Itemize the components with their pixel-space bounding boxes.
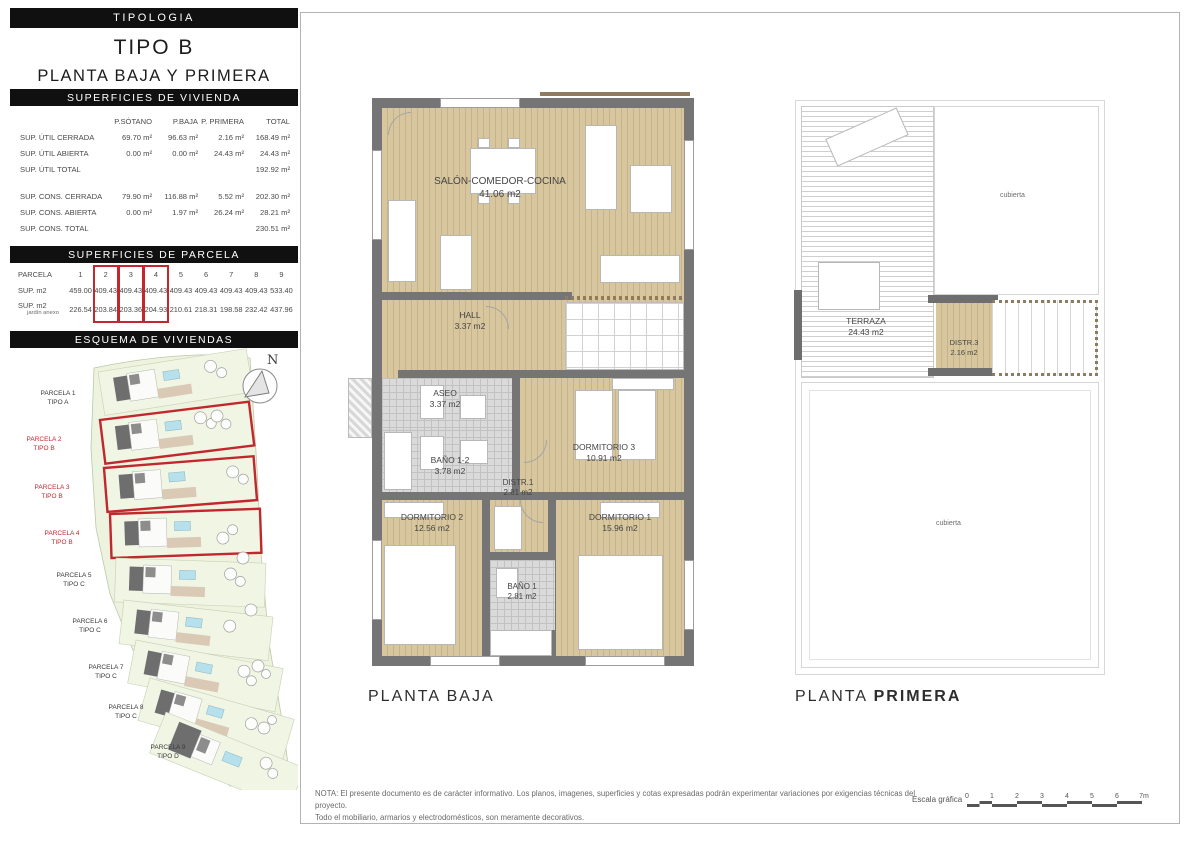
parcel-label-5: PARCELA 5 (57, 572, 92, 579)
planta-primera-caption: PLANTA PRIMERA (795, 688, 961, 706)
porch-dotted-edge (565, 296, 684, 300)
wall (928, 368, 998, 376)
cubierta-bottom-label: cubierta (936, 520, 961, 527)
parcela-table: PARCELA 123456789 SUP. m2 459.00409.4340… (10, 263, 298, 320)
esquema-header-bar: ESQUEMA DE VIVIENDAS (10, 331, 298, 348)
window (372, 150, 382, 240)
kitchen-island (630, 165, 672, 213)
room-label-bano1: BAÑO 12.81 m2 (490, 582, 554, 603)
sofa (388, 200, 416, 282)
window (684, 560, 694, 630)
svg-text:TIPO C: TIPO C (63, 581, 85, 588)
tree-icon (245, 604, 257, 616)
svg-text:TIPO B: TIPO B (33, 445, 54, 452)
window (585, 656, 665, 666)
svg-text:N: N (267, 353, 278, 368)
parcel-label-9: PARCELA 9 (151, 744, 186, 751)
tipo-title: TIPO B (10, 36, 298, 60)
vivienda-header-row: P.SÓTANO P.BAJA P. PRIMERA TOTAL (20, 113, 290, 129)
svg-text:TIPO D: TIPO D (157, 753, 179, 760)
room-label-salon: SALÓN-COMEDOR-COCINA41.06 m2 (420, 175, 580, 201)
room-label-dorm3: DORMITORIO 310.91 m2 (552, 442, 656, 464)
parcel-label-8: PARCELA 8 (109, 704, 144, 711)
svg-text:TIPO C: TIPO C (79, 627, 101, 634)
svg-text:3: 3 (1040, 793, 1044, 800)
room-label-terraza: TERRAZA24.43 m2 (828, 316, 904, 338)
svg-text:4: 4 (1065, 793, 1069, 800)
col-sotano: P.SÓTANO (106, 117, 152, 126)
stair-void (490, 630, 552, 656)
parcela-jardin-row: SUP. m2jardín anexo 226.54203.84203.3620… (14, 298, 294, 320)
tree-icon (262, 670, 271, 679)
staircase (565, 302, 684, 370)
planta-baja-caption: PLANTA BAJA (368, 688, 495, 706)
vivienda-table: P.SÓTANO P.BAJA P. PRIMERA TOTAL SUP. ÚT… (10, 106, 298, 236)
svg-text:0: 0 (965, 793, 969, 800)
nota-text: NOTA: El presente documento es de caráct… (315, 788, 927, 824)
col-total: TOTAL (244, 117, 290, 126)
tipologia-header-bar: TIPOLOGIA (10, 8, 298, 28)
room-label-bano12: BAÑO 1-23.78 m2 (408, 455, 492, 477)
table-row: SUP. ÚTIL ABIERTA 0.00 m² 0.00 m² 24.43 … (20, 145, 290, 161)
site-plan: N PARCELA 1 TIPO A PARCELA 2 TIPO B PARC… (10, 348, 298, 790)
wall (512, 378, 520, 492)
cubierta-top-label: cubierta (1000, 192, 1025, 199)
table-row: SUP. CONS. TOTAL 230.51 m² (20, 220, 290, 236)
vanity (494, 506, 522, 550)
svg-text:TIPO B: TIPO B (51, 539, 72, 546)
parcel-label-1: PARCELA 1 (41, 390, 76, 397)
wall (490, 552, 556, 560)
bed (578, 555, 663, 650)
window (684, 140, 694, 250)
parcel-strip-4 (110, 509, 261, 558)
tree-icon (237, 552, 249, 564)
room-label-hall: HALL3.37 m2 (440, 310, 500, 332)
svg-text:TIPO B: TIPO B (41, 493, 62, 500)
svg-text:TIPO C: TIPO C (95, 673, 117, 680)
parcel-label-3: PARCELA 3 (35, 484, 70, 491)
window (430, 656, 500, 666)
plan-sheet: { "header": { "tipologia": "TIPOLOGIA", … (0, 0, 1191, 842)
tree-icon (252, 660, 264, 672)
counter (600, 255, 680, 283)
scale-label: Escala gráfica (912, 795, 962, 804)
table-row: SUP. ÚTIL TOTAL 192.92 m² (20, 161, 290, 177)
tipologia-title: TIPOLOGIA (113, 12, 195, 24)
parcel-label-4: PARCELA 4 (45, 530, 80, 537)
parcel-strip-5 (114, 558, 265, 607)
chair (508, 138, 520, 148)
col-baja: P.BAJA (152, 117, 198, 126)
table-row: SUP. ÚTIL CERRADA 69.70 m² 96.63 m² 2.16… (20, 129, 290, 145)
roof-edge (540, 92, 690, 96)
terrace-table (818, 262, 880, 310)
room-label-aseo: ASEO3.37 m2 (410, 388, 480, 410)
room-label-distr1: DISTR.12.81 m2 (488, 478, 548, 499)
svg-text:1: 1 (990, 793, 994, 800)
tree-icon (221, 419, 231, 429)
parcela-sup-row: SUP. m2 459.00409.43409.43409.43409.4340… (14, 283, 294, 298)
staircase-upper (992, 300, 1098, 376)
svg-text:6: 6 (1115, 793, 1119, 800)
sideboard (440, 235, 472, 290)
graphic-scale: 0 1 2 3 4 5 6 7m (965, 790, 1155, 812)
scale-bar-segments (967, 801, 1142, 807)
wardrobe (612, 378, 674, 390)
cubierta-top-area (934, 106, 1099, 295)
chair (478, 138, 490, 148)
parcel-label-2: PARCELA 2 (27, 436, 62, 443)
kitchen-counter (585, 125, 617, 210)
tree-icon (211, 410, 223, 422)
window (372, 540, 382, 620)
wall (398, 370, 520, 378)
tipo-subtitle: PLANTA BAJA Y PRIMERA (10, 67, 298, 86)
parcela-title: SUPERFICIES DE PARCELA (68, 249, 240, 261)
wall (382, 292, 572, 300)
col-primera: P. PRIMERA (198, 117, 244, 126)
type-title-block: TIPO B PLANTA BAJA Y PRIMERA (10, 28, 298, 86)
svg-text:2: 2 (1015, 793, 1019, 800)
svg-text:TIPO A: TIPO A (48, 399, 70, 406)
wall (482, 500, 490, 656)
table-row: SUP. CONS. CERRADA 79.90 m² 116.88 m² 5.… (20, 188, 290, 204)
entry-porch (348, 378, 372, 438)
wall (372, 98, 690, 108)
parcela-header-bar: SUPERFICIES DE PARCELA (10, 246, 298, 263)
table-row: SUP. CONS. ABIERTA 0.00 m² 1.97 m² 26.24… (20, 204, 290, 220)
bed (384, 545, 456, 645)
svg-text:5: 5 (1090, 793, 1094, 800)
vivienda-title: SUPERFICIES DE VIVIENDA (67, 92, 241, 104)
wall (928, 295, 998, 303)
distr3-floor (936, 303, 992, 368)
esquema-title: ESQUEMA DE VIVIENDAS (75, 334, 233, 346)
room-label-dorm1: DORMITORIO 115.96 m2 (568, 512, 672, 534)
window (440, 98, 520, 108)
room-label-dorm2: DORMITORIO 212.56 m2 (382, 512, 482, 534)
room-label-distr3: DISTR.32.16 m2 (936, 338, 992, 358)
wall (518, 370, 684, 378)
svg-text:TIPO C: TIPO C (115, 713, 137, 720)
wall (794, 290, 802, 360)
vivienda-header-bar: SUPERFICIES DE VIVIENDA (10, 89, 298, 106)
parcela-numbers-row: PARCELA 123456789 (14, 266, 294, 283)
tree-icon (258, 722, 270, 734)
parcel-label-6: PARCELA 6 (73, 618, 108, 625)
svg-text:7m: 7m (1139, 793, 1149, 800)
parcel-label-7: PARCELA 7 (89, 664, 124, 671)
tree-icon (268, 716, 277, 725)
